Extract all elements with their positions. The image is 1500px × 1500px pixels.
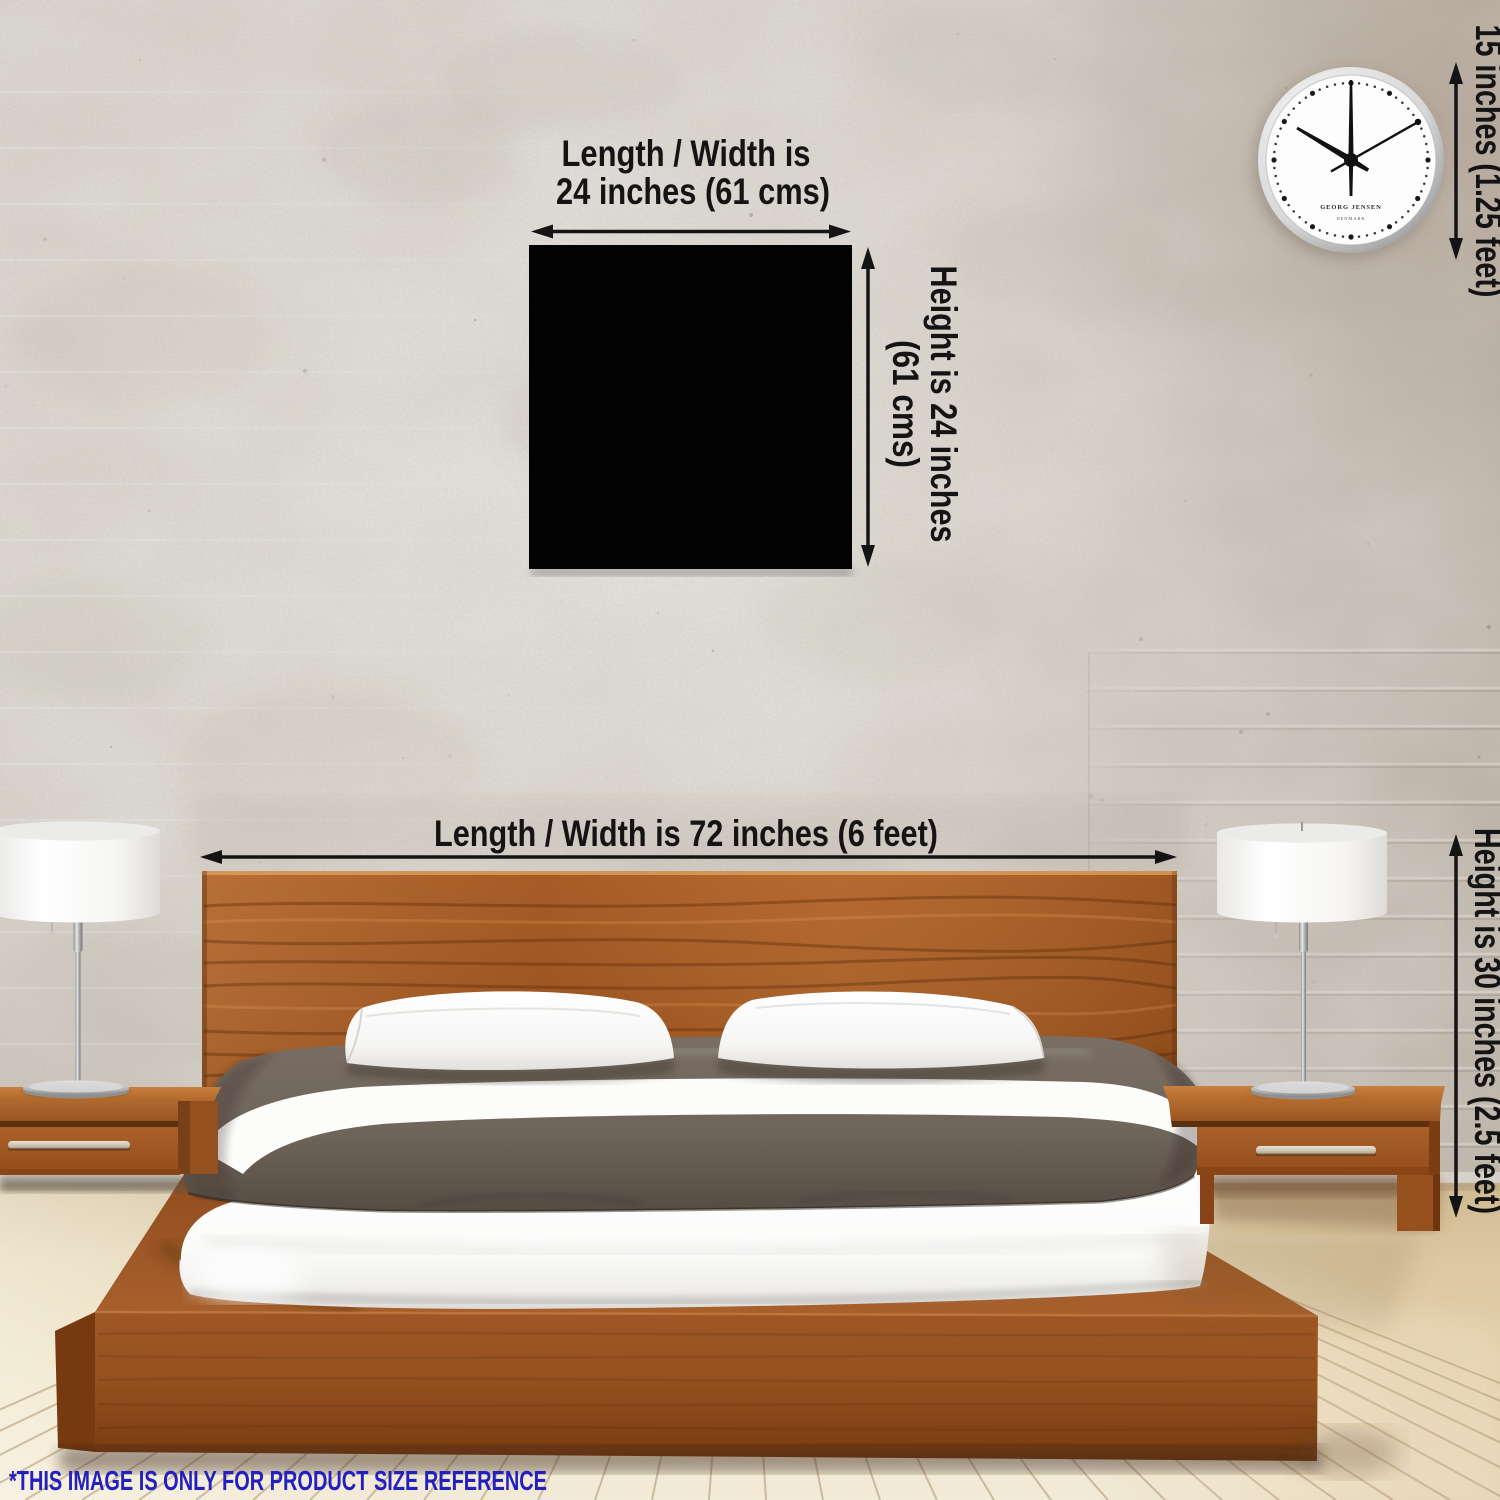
svg-text:*THIS IMAGE IS ONLY FOR PRODUC: *THIS IMAGE IS ONLY FOR PRODUCT SIZE REF… bbox=[9, 1465, 547, 1496]
svg-text:GEORG JENSEN: GEORG JENSEN bbox=[1320, 204, 1382, 211]
svg-text:15 inches (1.25 feet): 15 inches (1.25 feet) bbox=[1468, 25, 1500, 298]
svg-text:DENMARK: DENMARK bbox=[1336, 216, 1365, 221]
svg-text:Length / Width is 72 inches (6: Length / Width is 72 inches (6 feet) bbox=[434, 812, 938, 854]
svg-text:24 inches (61 cms): 24 inches (61 cms) bbox=[556, 170, 830, 212]
svg-text:Length / Width is: Length / Width is bbox=[562, 132, 811, 174]
svg-text:Height is 30 inches (2.5 feet): Height is 30 inches (2.5 feet) bbox=[1467, 828, 1500, 1214]
